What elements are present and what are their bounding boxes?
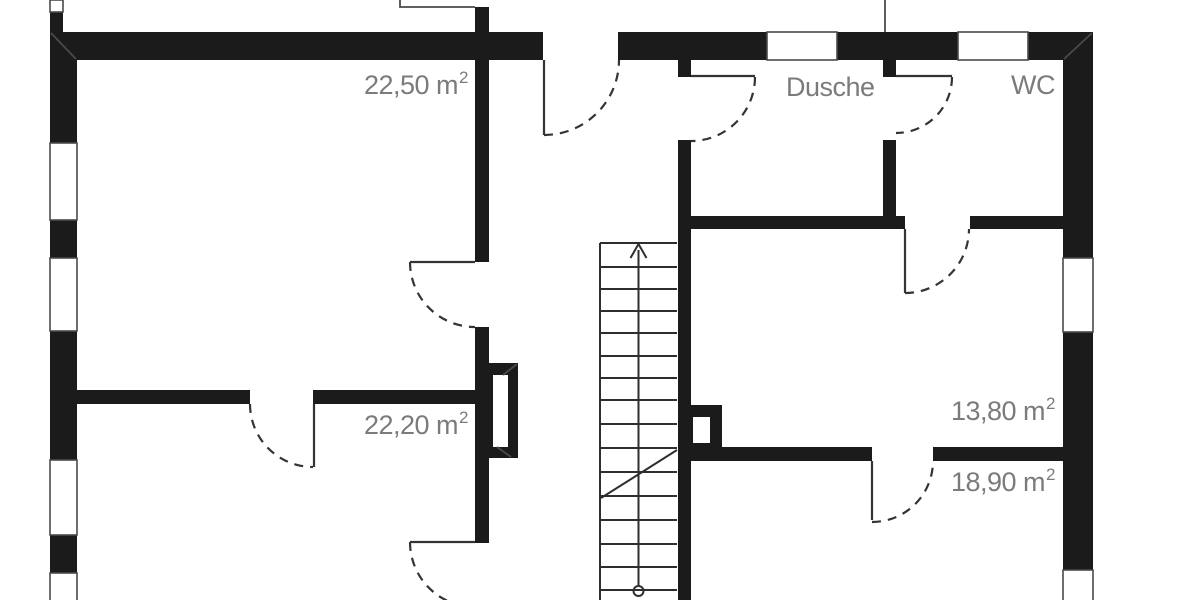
door-swing-arc: [410, 542, 475, 600]
room-name-label-wc: WC: [1011, 72, 1055, 99]
staircase: [600, 243, 677, 600]
door-swing-arc: [250, 404, 313, 467]
wall-segment: [475, 60, 489, 262]
door-swing-arc: [544, 60, 619, 135]
wall-segment: [1063, 32, 1093, 258]
window: [50, 258, 77, 331]
wall-segment: [678, 140, 691, 600]
windows: [50, 0, 1093, 600]
wall-segment: [50, 12, 63, 32]
label-text: 13,80 m: [951, 396, 1045, 426]
wall-segment: [313, 390, 475, 404]
wall-segment: [50, 220, 77, 258]
chimney-flue: [693, 417, 710, 443]
wall-segment: [50, 32, 543, 60]
door-swing-arc: [410, 262, 475, 327]
room-name-label-dusche: Dusche: [786, 74, 875, 101]
label-text: WC: [1011, 70, 1055, 100]
wall-segment: [722, 447, 872, 461]
wall-segment: [475, 327, 489, 543]
wall-segment: [970, 216, 1063, 229]
window: [50, 0, 63, 12]
label-text: 22,50 m: [364, 70, 458, 100]
wall-segment: [50, 535, 77, 573]
room-area-label-13-80: 13,80 m2: [951, 398, 1054, 425]
window: [50, 143, 77, 220]
wall-segment: [837, 32, 958, 60]
stair-direction-arrow: [639, 244, 647, 258]
label-sup: 2: [1046, 465, 1055, 484]
door-swing-arc: [872, 461, 933, 522]
window: [50, 460, 77, 535]
room-area-label-22-50: 22,50 m2: [364, 72, 467, 99]
cutoff-outline: [400, 0, 475, 7]
interior-walls: [77, 60, 1063, 600]
window: [958, 32, 1028, 60]
wall-segment: [50, 331, 77, 460]
wall-segment: [77, 390, 250, 404]
door-swing-arc: [905, 229, 969, 293]
window: [50, 573, 77, 600]
door-swing-arc: [691, 77, 755, 141]
window: [1063, 258, 1093, 332]
label-text: 22,20 m: [364, 410, 458, 440]
label-sup: 2: [459, 68, 468, 87]
room-area-label-22-20: 22,20 m2: [364, 412, 467, 439]
door-swing-arc: [896, 77, 952, 133]
stair-direction-arrow: [631, 244, 639, 258]
wall-segment: [678, 60, 691, 77]
wall-segment: [1063, 332, 1093, 570]
wall-segment: [883, 140, 896, 216]
wall-segment: [475, 7, 489, 60]
wall-segment: [933, 447, 1063, 461]
window: [1063, 570, 1093, 600]
exterior-walls: [50, 7, 1093, 573]
wall-segment: [678, 216, 905, 229]
label-text: Dusche: [786, 72, 875, 102]
label-sup: 2: [1046, 394, 1055, 413]
floor-plan: 22,50 m2 Dusche WC 22,20 m2 13,80 m2 18,…: [0, 0, 1200, 600]
wall-segment: [618, 32, 767, 60]
label-text: 18,90 m: [951, 467, 1045, 497]
chimney-flue: [493, 375, 508, 447]
room-area-label-18-90: 18,90 m2: [951, 469, 1054, 496]
window: [767, 32, 837, 60]
label-sup: 2: [459, 408, 468, 427]
wall-segment: [883, 60, 896, 77]
